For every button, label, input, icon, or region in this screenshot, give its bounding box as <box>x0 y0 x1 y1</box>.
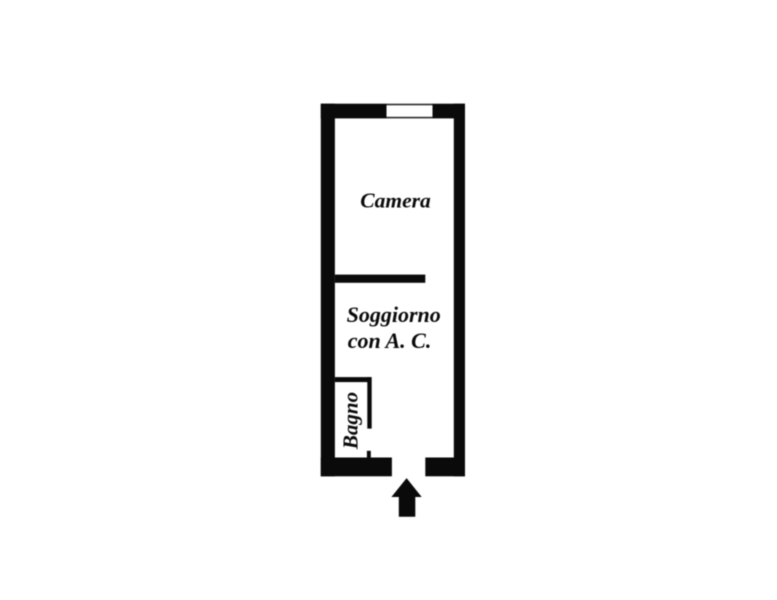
svg-text:con A. C.: con A. C. <box>348 328 432 353</box>
svg-text:Camera: Camera <box>360 189 431 213</box>
svg-text:Soggiorno: Soggiorno <box>347 302 441 327</box>
svg-text:Bagno: Bagno <box>339 392 363 450</box>
